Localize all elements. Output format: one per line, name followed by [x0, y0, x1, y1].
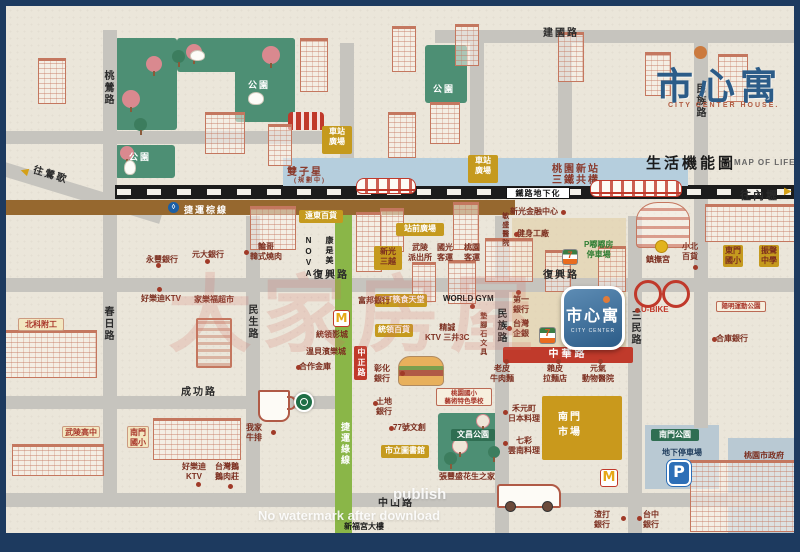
coffee-cup-icon: [258, 390, 290, 422]
poi-dot: [228, 484, 233, 489]
poi-standard-chartered: 渣打銀行: [594, 510, 610, 530]
poi-fitness-factory: 健身工廠: [517, 229, 549, 239]
parking-p-icon: P: [667, 460, 691, 486]
map-title-en: MAP OF LIFE: [734, 158, 796, 167]
direction-neili-arrow: ▶: [784, 187, 792, 197]
park-label: 公園: [129, 150, 151, 163]
poi-animal-hospital: 元氣動物醫院: [582, 364, 614, 384]
building: [268, 124, 292, 166]
poi-dot: [271, 430, 276, 435]
seven-eleven-icon: 7: [562, 249, 578, 265]
poi-dot: [373, 401, 378, 406]
project-logo-map: 市心寓CITY CENTER: [561, 286, 625, 350]
poi-dot: [621, 516, 626, 521]
train-icon-right: [590, 180, 682, 197]
cityhall-label: 桃園市政府: [733, 451, 795, 461]
poi-dot: [693, 265, 698, 270]
taoyuan-elementary-tag: 桃園國小藝術特色學校: [436, 388, 492, 406]
station-plaza-tag: 車站廣場: [468, 155, 498, 183]
street-label-fuxing: 復興路: [543, 266, 579, 281]
tree: [262, 46, 280, 64]
park-label: 公園: [248, 78, 270, 91]
yangming-park-tag: 陽明運動公園: [716, 301, 766, 312]
poi-qicai-yunnan: 七彩雲南料理: [508, 436, 540, 456]
wuling-school-tag: 武陵高中: [62, 426, 100, 438]
poi-laipi-ramen: 賴皮拉麵店: [543, 364, 567, 384]
building: [205, 112, 245, 154]
metro-logo-icon: ◊: [168, 202, 179, 213]
mcdonalds-icon: M: [600, 469, 618, 487]
poi-xiaobei-store: 小北百貨: [682, 242, 698, 262]
building: [392, 26, 416, 72]
road-jianguo: [435, 30, 800, 43]
school-building-beike: [5, 330, 97, 378]
building: [300, 38, 328, 92]
map-title: 生活機能圖: [646, 152, 736, 173]
poi-myhome-steak: 我家牛排: [246, 423, 262, 443]
station-plaza-tag: 車站廣場: [322, 126, 352, 154]
park-block-a: [115, 38, 177, 130]
tree: [476, 414, 490, 428]
dog-icon: [248, 92, 264, 105]
poi-77-artspace: 77號文創: [393, 423, 426, 433]
poi-xinfugong: 新福宮大樓: [344, 522, 384, 532]
poi-peanut-house: 張豐盛花生之家: [435, 472, 499, 482]
train-icon-left: [356, 178, 416, 194]
watermark-line2: No watermark after download: [258, 508, 440, 523]
tree: [122, 90, 140, 108]
poi-hospital: 敏盛醫院: [500, 212, 509, 248]
tree: [172, 50, 185, 63]
poi-dot: [635, 308, 640, 313]
zhensheng-school-tag: 振聲中學: [759, 245, 779, 267]
poi-taichung-bank: 台中銀行: [643, 510, 659, 530]
city-library-tag: 市立圖書館: [381, 445, 429, 458]
watermark-brand: 大家房屋: [168, 248, 544, 369]
poi-dot: [503, 410, 508, 415]
poi-dot: [598, 359, 603, 364]
tree: [444, 452, 457, 465]
poi-dot: [556, 359, 561, 364]
jeep-icon: [497, 484, 561, 508]
poi-dot: [514, 232, 519, 237]
street-label-sanmin: 三民路: [627, 310, 642, 346]
underground-parking-label: 地下停車場: [649, 448, 715, 458]
zhenfu-temple-dot: [655, 240, 668, 253]
wenchang-park-tag: 文昌公園: [451, 429, 495, 441]
building: [38, 58, 66, 104]
poi-land-bank: 土地銀行: [376, 397, 392, 417]
twin-star-note: (規劃中): [294, 175, 326, 184]
poi-taiwan-coop: 合庫銀行: [716, 334, 748, 344]
poi-goose-restaurant: 台灣鵝鵝肉莊: [215, 462, 239, 482]
poi-dot: [400, 371, 405, 376]
cat-icon: [190, 50, 205, 61]
tree: [134, 118, 147, 131]
poi-dot: [503, 441, 508, 446]
station-front-plaza-tag: 站前廣場: [396, 223, 444, 236]
bus-icon: [288, 112, 324, 130]
school-building-dongmen: [705, 204, 799, 242]
beike-school-tag: 北科附工: [18, 318, 64, 331]
cityhall-building: [690, 460, 798, 532]
poi-shinkong-center: 新光金融中心: [506, 207, 562, 217]
poi-dot: [637, 516, 642, 521]
railway-band: [115, 185, 800, 199]
mrt-green-label: 捷運綠線: [339, 422, 352, 466]
nanmen-elementary-tag: 南門國小: [127, 426, 149, 448]
street-label-chunri: 春日路: [100, 306, 115, 342]
road-sanmin: [628, 216, 642, 546]
poi-dot: [712, 337, 717, 342]
building: [430, 102, 460, 144]
school-building-nanmen: [153, 418, 241, 460]
building: [455, 24, 479, 66]
poi-dot: [389, 426, 394, 431]
park-label: 公園: [433, 82, 455, 95]
watermark-line1: publish: [393, 486, 446, 503]
starbucks-logo-icon: [294, 392, 314, 412]
poi-dot: [196, 482, 201, 487]
brand-subtitle: CITY CENTER HOUSE.: [668, 102, 779, 109]
building: [558, 32, 584, 82]
poi-heyuanting-japanese: 禾元町日本料理: [508, 404, 540, 424]
poi-ubike: U-BIKE: [641, 305, 669, 315]
mrt-brown-label: 捷運棕線: [184, 203, 228, 216]
nanmen-market-label: 南門市場: [558, 408, 582, 438]
poi-holiday-ktv-south: 好樂迪KTV: [182, 462, 206, 482]
nanmen-market-block: [542, 396, 622, 460]
far-eastern-dept-tag: 遠東百貨: [299, 210, 343, 223]
nanmen-park-tag: 南門公園: [651, 429, 699, 441]
bike-icon: [634, 274, 690, 308]
poi-dot: [561, 210, 566, 215]
school-building-wuling: [12, 444, 104, 476]
building: [388, 112, 416, 158]
direction-neili-label: 往內壢: [740, 187, 779, 203]
tree: [146, 56, 162, 72]
rail-underground-tag: 鐵路地下化: [506, 187, 570, 199]
bottom-navy-bar: [0, 533, 800, 552]
street-label-chenggong: 成功路: [181, 383, 217, 398]
poi-dot: [156, 263, 161, 268]
street-label-taoying: 桃鶯路: [100, 70, 115, 106]
tree: [488, 446, 500, 458]
street-label-jianguo: 建國路: [543, 24, 579, 39]
dongmen-elementary-tag: 東門國小: [723, 245, 743, 267]
poi-zhenfu-temple: 鎮撫宮: [646, 255, 670, 265]
poi-dudufang-parking: P嘟嘟房停車場: [584, 240, 613, 260]
poi-dot: [157, 287, 162, 292]
